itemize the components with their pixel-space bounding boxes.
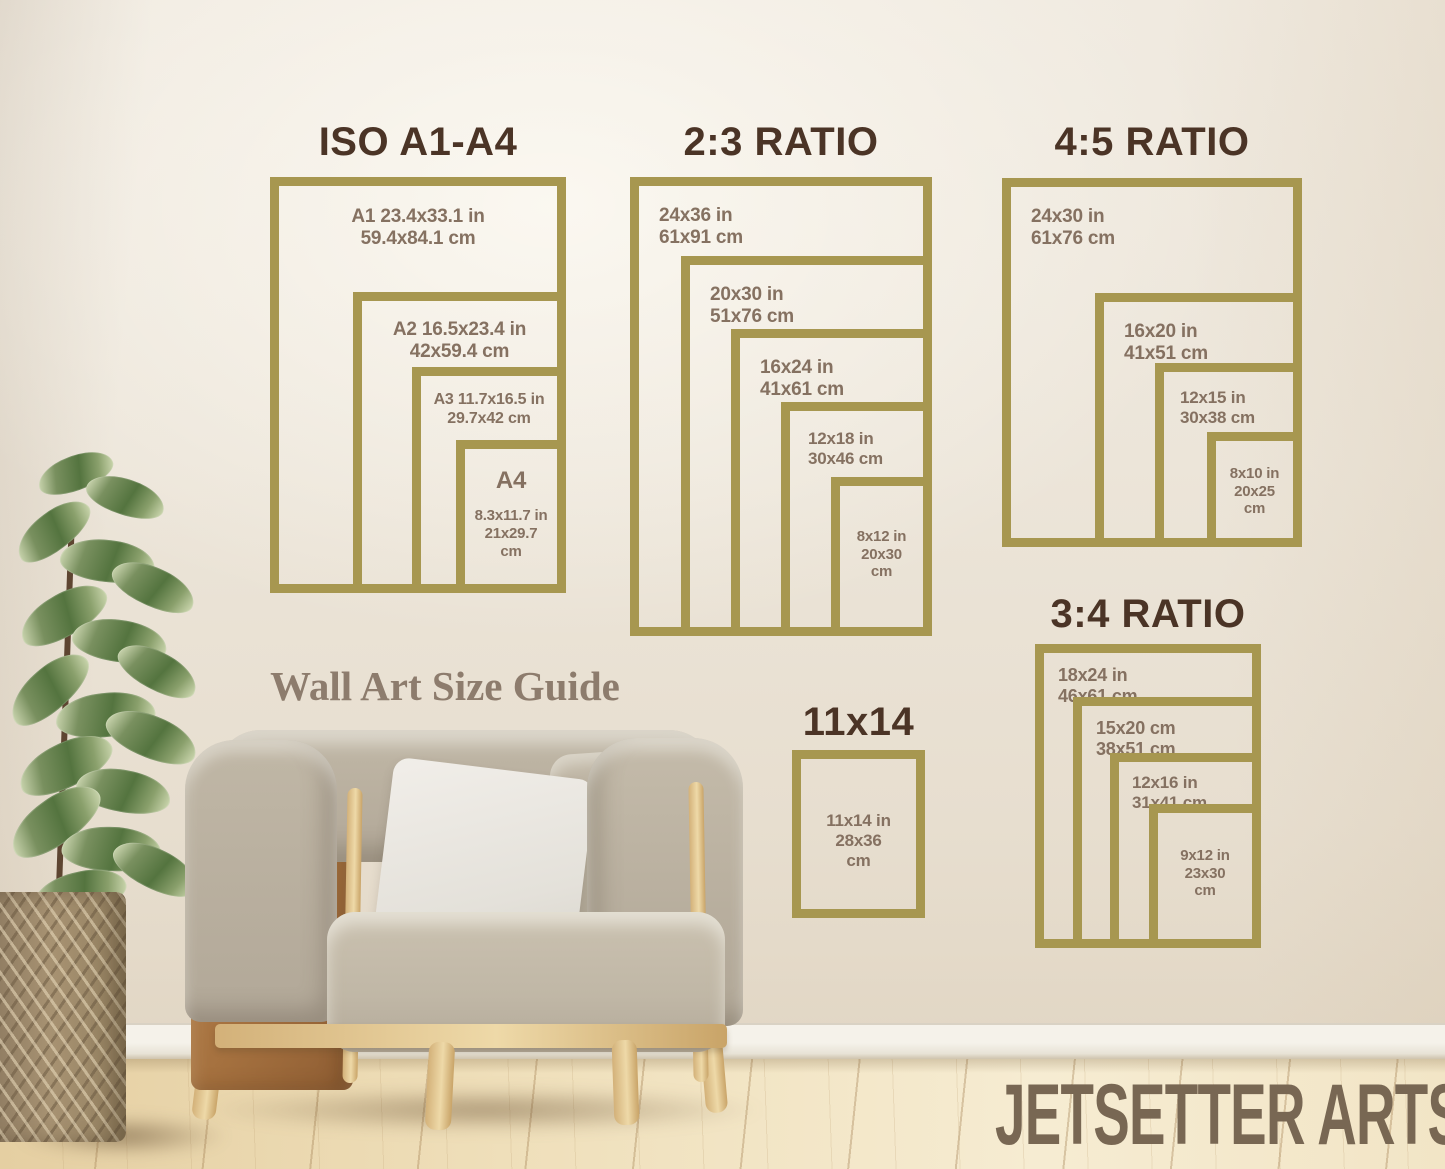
chair-leg-front-right xyxy=(612,1040,640,1126)
size-line: 16x24 in xyxy=(760,357,844,379)
size-line: 12x16 in xyxy=(1132,773,1207,793)
frame-24x36-label: 24x36 in 61x91 cm xyxy=(659,205,743,250)
size-line: 28x36 xyxy=(801,831,916,851)
frame-a4-label: A4 8.3x11.7 in 21x29.7 cm xyxy=(465,467,557,560)
size-line: 61x76 cm xyxy=(1031,228,1115,250)
size-line: 15x20 cm xyxy=(1096,718,1175,739)
size-line: 11x14 in xyxy=(801,811,916,831)
size-line: cm xyxy=(801,851,916,871)
size-heading: A4 xyxy=(465,467,557,495)
frame-16x20-label: 16x20 in 41x51 cm xyxy=(1124,321,1208,366)
size-group-iso: A1 23.4x33.1 in 59.4x84.1 cm A2 16.5x23.… xyxy=(270,177,566,593)
frame-11x14-label: 11x14 in 28x36 cm xyxy=(801,811,916,871)
potted-plant xyxy=(0,440,178,1160)
size-line: 20x30 in xyxy=(710,284,794,306)
frame-a4: A4 8.3x11.7 in 21x29.7 cm xyxy=(456,440,566,593)
size-line: cm xyxy=(1158,882,1252,900)
size-line: 9x12 in xyxy=(1158,847,1252,865)
frame-a1-label: A1 23.4x33.1 in 59.4x84.1 cm xyxy=(279,206,557,251)
size-line: A2 16.5x23.4 in xyxy=(362,319,557,341)
size-line: cm xyxy=(1216,500,1293,518)
group-title-3-4: 3:4 RATIO xyxy=(1035,594,1261,634)
size-line: 12x15 in xyxy=(1180,388,1255,408)
size-line: 51x76 cm xyxy=(710,306,794,328)
brand-logo-text: JETSETTER ARTS xyxy=(995,1072,1319,1168)
size-line: 42x59.4 cm xyxy=(362,341,557,363)
size-line: 12x18 in xyxy=(808,429,883,449)
size-line: 20x30 xyxy=(840,546,923,564)
frame-a2-label: A2 16.5x23.4 in 42x59.4 cm xyxy=(362,319,557,364)
size-line: 8x12 in xyxy=(840,528,923,546)
frame-24x30-label: 24x30 in 61x76 cm xyxy=(1031,206,1115,251)
group-title-iso: ISO A1-A4 xyxy=(270,122,566,162)
size-line: 8x10 in xyxy=(1216,465,1293,483)
chair-arm-left xyxy=(185,740,337,1022)
size-line: 18x24 in xyxy=(1058,665,1137,686)
frame-a3-label: A3 11.7x16.5 in 29.7x42 cm xyxy=(421,391,557,429)
group-title-2-3: 2:3 RATIO xyxy=(630,122,932,162)
frame-9x12-label: 9x12 in 23x30 cm xyxy=(1158,847,1252,900)
frame-9x12: 9x12 in 23x30 cm xyxy=(1149,804,1261,948)
frame-11x14: 11x14 in 28x36 cm xyxy=(792,750,925,918)
frame-8x12: 8x12 in 20x30 cm xyxy=(831,477,932,636)
size-line: 29.7x42 cm xyxy=(421,410,557,429)
group-title-11x14: 11x14 xyxy=(792,702,925,742)
chair-front-rail xyxy=(215,1024,727,1048)
size-group-3-4: 18x24 in 46x61 cm 15x20 cm 38x51 cm 12x1… xyxy=(1035,644,1261,948)
size-line: 24x36 in xyxy=(659,205,743,227)
size-line: 20x25 xyxy=(1216,483,1293,501)
frame-8x10-label: 8x10 in 20x25 cm xyxy=(1216,465,1293,518)
size-line: 16x20 in xyxy=(1124,321,1208,343)
chair-leg-front-left xyxy=(425,1041,456,1130)
size-line: A3 11.7x16.5 in xyxy=(421,391,557,410)
size-line: A1 23.4x33.1 in xyxy=(279,206,557,228)
size-line: 41x61 cm xyxy=(760,379,844,401)
room-scene: ISO A1-A4 A1 23.4x33.1 in 59.4x84.1 cm A… xyxy=(0,0,1445,1169)
size-group-4-5: 24x30 in 61x76 cm 16x20 in 41x51 cm 12x1… xyxy=(1002,178,1302,547)
frame-12x15-label: 12x15 in 30x38 cm xyxy=(1180,388,1255,428)
size-line: 23x30 xyxy=(1158,865,1252,883)
size-line: 21x29.7 xyxy=(465,525,557,543)
armchair xyxy=(185,730,745,1130)
caption-text: Wall Art Size Guide xyxy=(230,662,660,710)
size-line: 30x38 cm xyxy=(1180,408,1255,428)
size-line: 24x30 in xyxy=(1031,206,1115,228)
size-line: 61x91 cm xyxy=(659,227,743,249)
size-line: cm xyxy=(840,563,923,581)
group-title-4-5: 4:5 RATIO xyxy=(1002,122,1302,162)
size-line: 59.4x84.1 cm xyxy=(279,228,557,250)
frame-8x10: 8x10 in 20x25 cm xyxy=(1207,432,1302,547)
size-group-2-3: 24x36 in 61x91 cm 20x30 in 51x76 cm 16x2… xyxy=(630,177,932,636)
size-line: 30x46 cm xyxy=(808,449,883,469)
plant-basket xyxy=(0,892,126,1142)
size-line: 8.3x11.7 in xyxy=(465,507,557,525)
size-line: cm xyxy=(465,543,557,561)
size-group-11x14: 11x14 in 28x36 cm xyxy=(792,750,925,918)
frame-16x24-label: 16x24 in 41x61 cm xyxy=(760,357,844,402)
frame-20x30-label: 20x30 in 51x76 cm xyxy=(710,284,794,329)
frame-8x12-label: 8x12 in 20x30 cm xyxy=(840,528,923,581)
frame-12x18-label: 12x18 in 30x46 cm xyxy=(808,429,883,469)
